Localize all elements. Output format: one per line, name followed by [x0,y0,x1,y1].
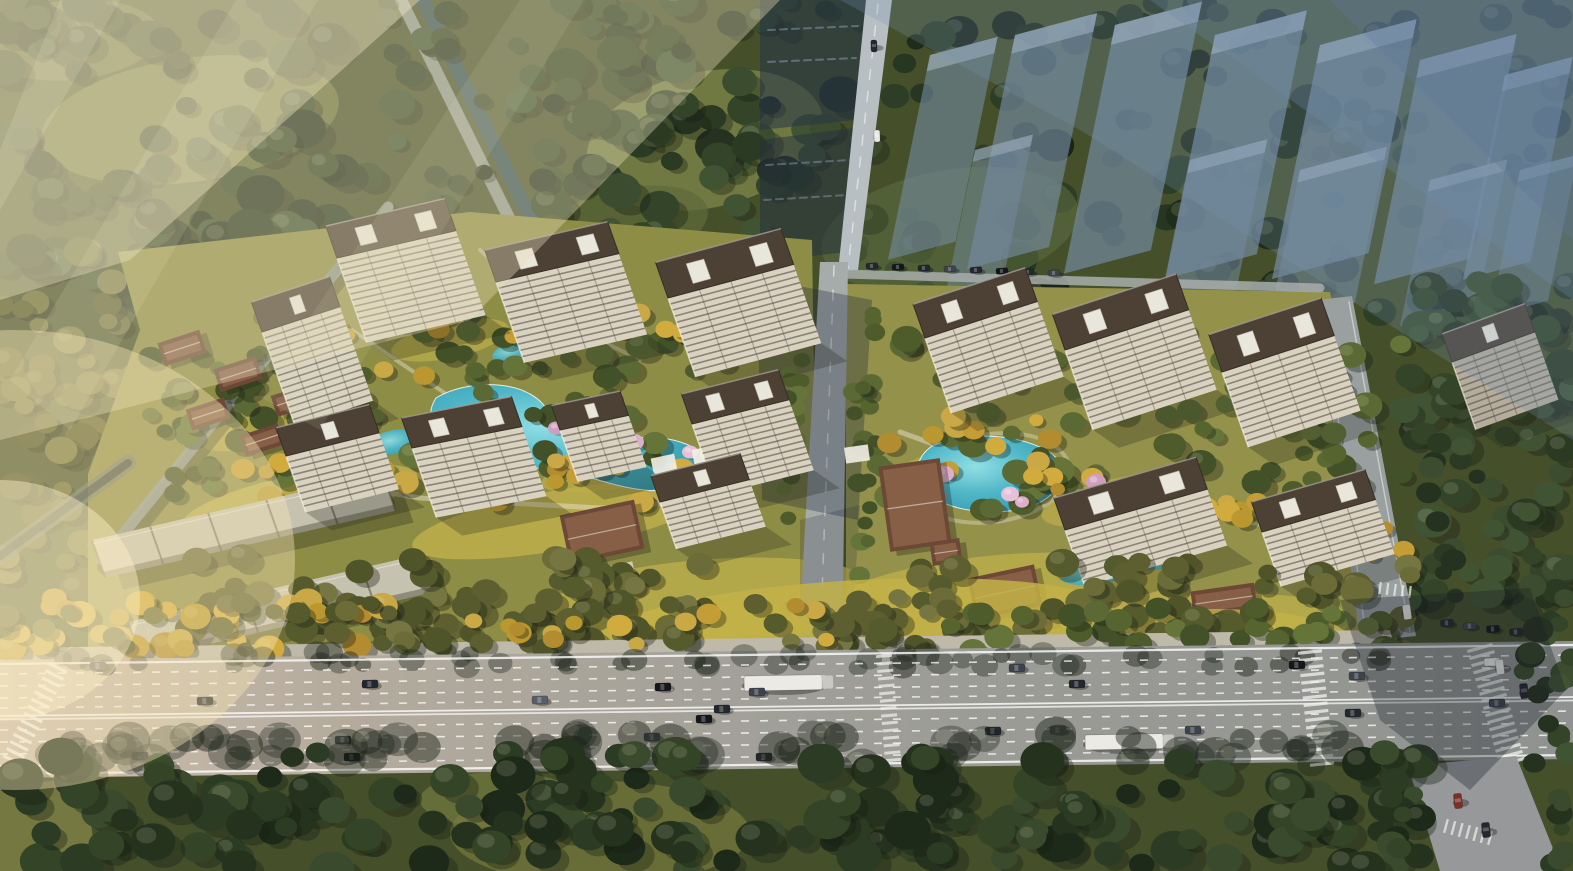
parking-lot [760,0,868,130]
white-canopy [844,444,870,463]
rendering-canvas [0,0,1573,871]
aerial-rendering-residential-complex [0,0,1573,871]
